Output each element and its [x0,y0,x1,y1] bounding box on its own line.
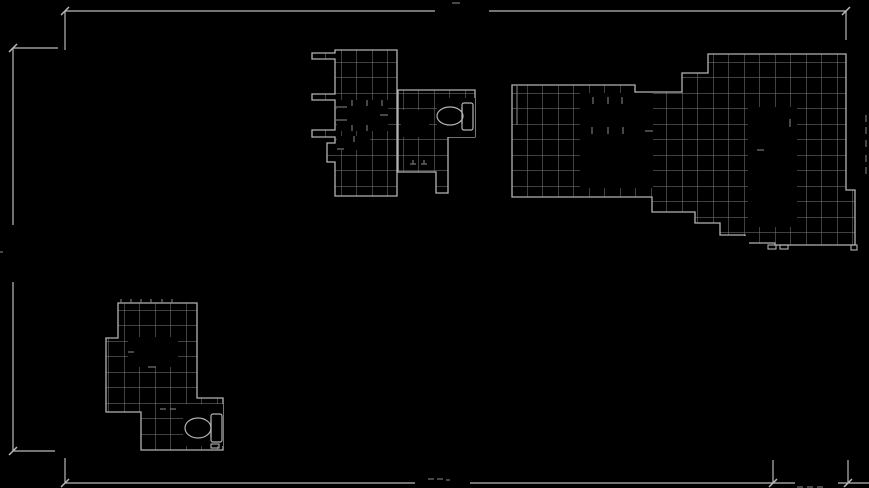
toilet-lower-bowl [185,418,211,438]
plan-lower-left-wing-room-cutout [128,337,178,367]
toilet-upper-bowl [437,107,463,125]
toilet-lower-tank [211,414,222,442]
cad-drawing-canvas[interactable] [0,0,869,488]
toilet-upper-tank [462,103,473,130]
plan-upper-right-wing-room-cutout [733,236,749,244]
floor-plan-svg [0,0,869,488]
plan-upper-right-wing-room-cutout [580,93,653,188]
plan-upper-mid-toilet-room-room-cutout [401,110,429,137]
